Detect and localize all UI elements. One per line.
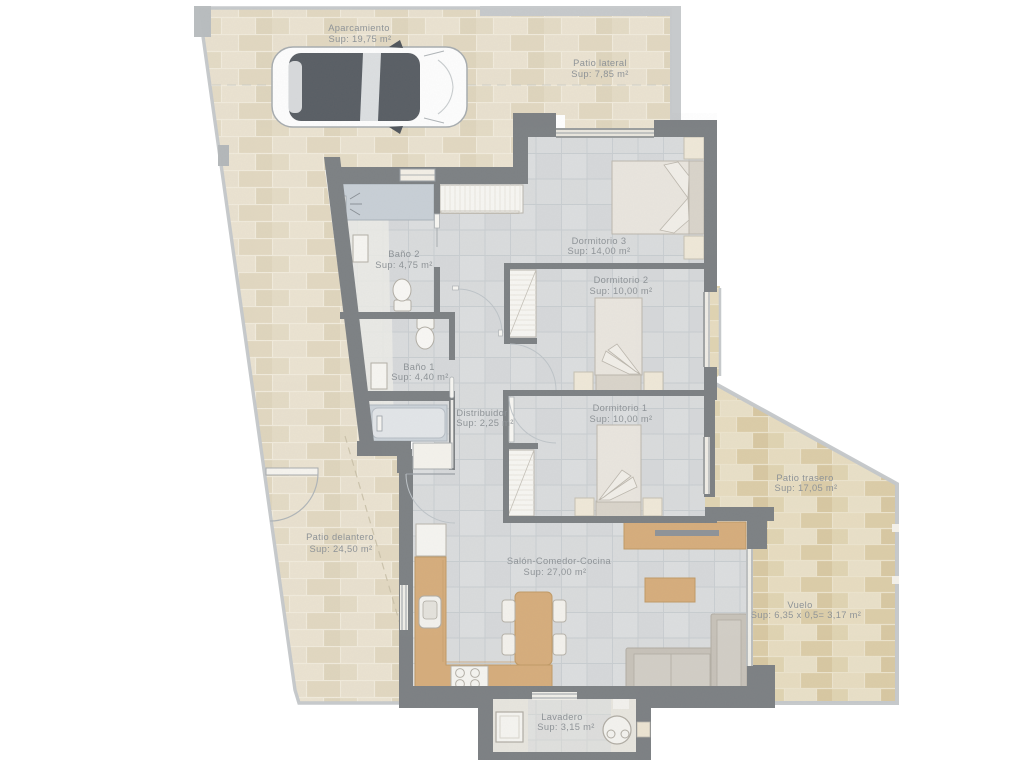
svg-text:Sup: 10,00 m²: Sup: 10,00 m² (590, 286, 653, 296)
svg-text:Baño 2: Baño 2 (388, 249, 420, 259)
svg-text:Baño 1: Baño 1 (403, 362, 435, 372)
svg-text:Patio trasero: Patio trasero (776, 473, 833, 483)
svg-text:Sup: 4,75 m²: Sup: 4,75 m² (375, 260, 432, 270)
svg-text:Dormitorio 1: Dormitorio 1 (593, 403, 648, 413)
svg-text:Patio lateral: Patio lateral (573, 58, 627, 68)
svg-text:Sup: 3,15 m²: Sup: 3,15 m² (537, 722, 594, 732)
svg-text:Sup: 7,85 m²: Sup: 7,85 m² (571, 69, 628, 79)
svg-text:Sup: 14,00 m²: Sup: 14,00 m² (568, 246, 631, 256)
svg-text:Sup: 19,75 m²: Sup: 19,75 m² (329, 34, 392, 44)
svg-text:Sup: 6,35 x 0,5= 3,17 m²: Sup: 6,35 x 0,5= 3,17 m² (751, 610, 861, 620)
svg-text:Sup: 27,00 m²: Sup: 27,00 m² (524, 567, 587, 577)
svg-text:Sup: 17,05 m²: Sup: 17,05 m² (775, 483, 838, 493)
svg-text:Vuelo: Vuelo (787, 600, 812, 610)
svg-text:Distribuidor: Distribuidor (456, 408, 507, 418)
svg-text:Salón-Comedor-Cocina: Salón-Comedor-Cocina (507, 556, 612, 566)
svg-text:Sup: 2,25 m²: Sup: 2,25 m² (456, 418, 513, 428)
svg-text:Aparcamiento: Aparcamiento (328, 23, 390, 33)
svg-text:Sup: 24,50 m²: Sup: 24,50 m² (310, 544, 373, 554)
svg-text:Sup: 4,40 m²: Sup: 4,40 m² (391, 372, 448, 382)
svg-text:Patio delantero: Patio delantero (306, 532, 374, 542)
svg-text:Dormitorio 2: Dormitorio 2 (594, 275, 649, 285)
svg-text:Lavadero: Lavadero (541, 712, 583, 722)
svg-text:Dormitorio 3: Dormitorio 3 (572, 236, 627, 246)
svg-text:Sup: 10,00 m²: Sup: 10,00 m² (590, 414, 653, 424)
